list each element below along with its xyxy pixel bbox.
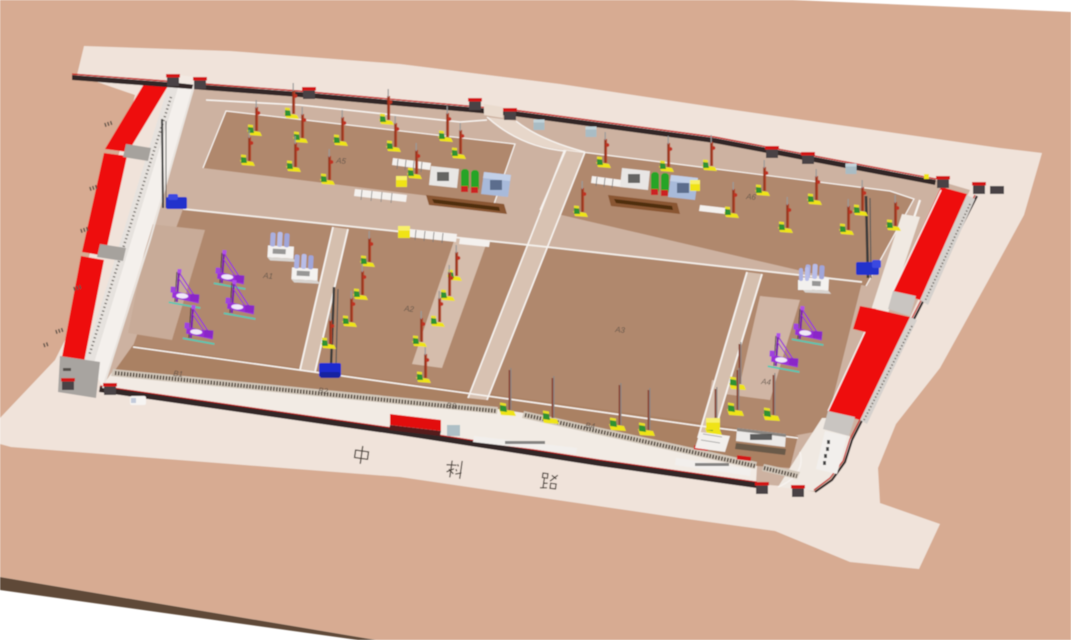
svg-text:A3: A3 bbox=[614, 325, 626, 335]
svg-text:A6: A6 bbox=[745, 192, 757, 202]
svg-text:B3: B3 bbox=[446, 401, 457, 411]
svg-text:A4: A4 bbox=[760, 377, 772, 387]
svg-text:B4: B4 bbox=[585, 421, 596, 431]
svg-text:B1: B1 bbox=[173, 369, 184, 379]
svg-text:B2: B2 bbox=[318, 386, 329, 396]
svg-text:A1: A1 bbox=[262, 271, 274, 281]
svg-text:A5: A5 bbox=[335, 156, 347, 166]
svg-text:A2: A2 bbox=[403, 304, 415, 314]
